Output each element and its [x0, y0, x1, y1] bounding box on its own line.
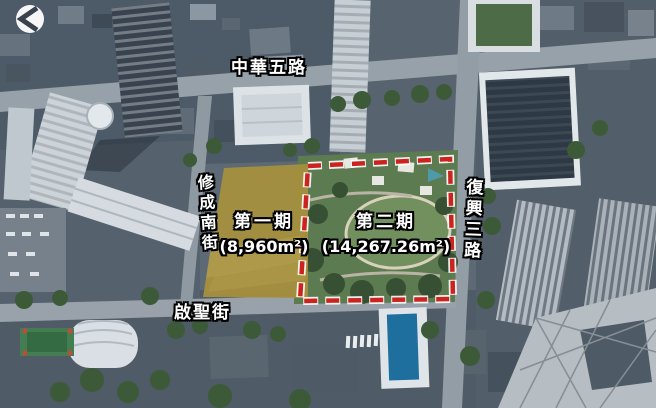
- aerial-photo: [0, 0, 656, 408]
- phase2-name: 第二期: [320, 210, 452, 235]
- phase1-name: 第一期: [206, 210, 322, 235]
- road-label-qisheng: 啟聖街: [174, 303, 231, 324]
- parking-lot: [0, 208, 66, 292]
- phase1-label: 第一期 (8,960m²): [206, 210, 322, 258]
- phase2-area: (14,267.26m²): [320, 235, 452, 258]
- phase2-label: 第二期 (14,267.26m²): [320, 210, 452, 258]
- aerial-annotation-frame: 中華五路 修成南街 復興三路 啟聖街 第一期 (8,960m²) 第二期 (14…: [0, 0, 656, 408]
- road-label-zhonghua5: 中華五路: [231, 58, 307, 79]
- back-chevron-circle-icon: [16, 5, 44, 33]
- road-label-fuxing3: 復興三路: [459, 178, 483, 263]
- phase1-area: (8,960m²): [206, 235, 322, 258]
